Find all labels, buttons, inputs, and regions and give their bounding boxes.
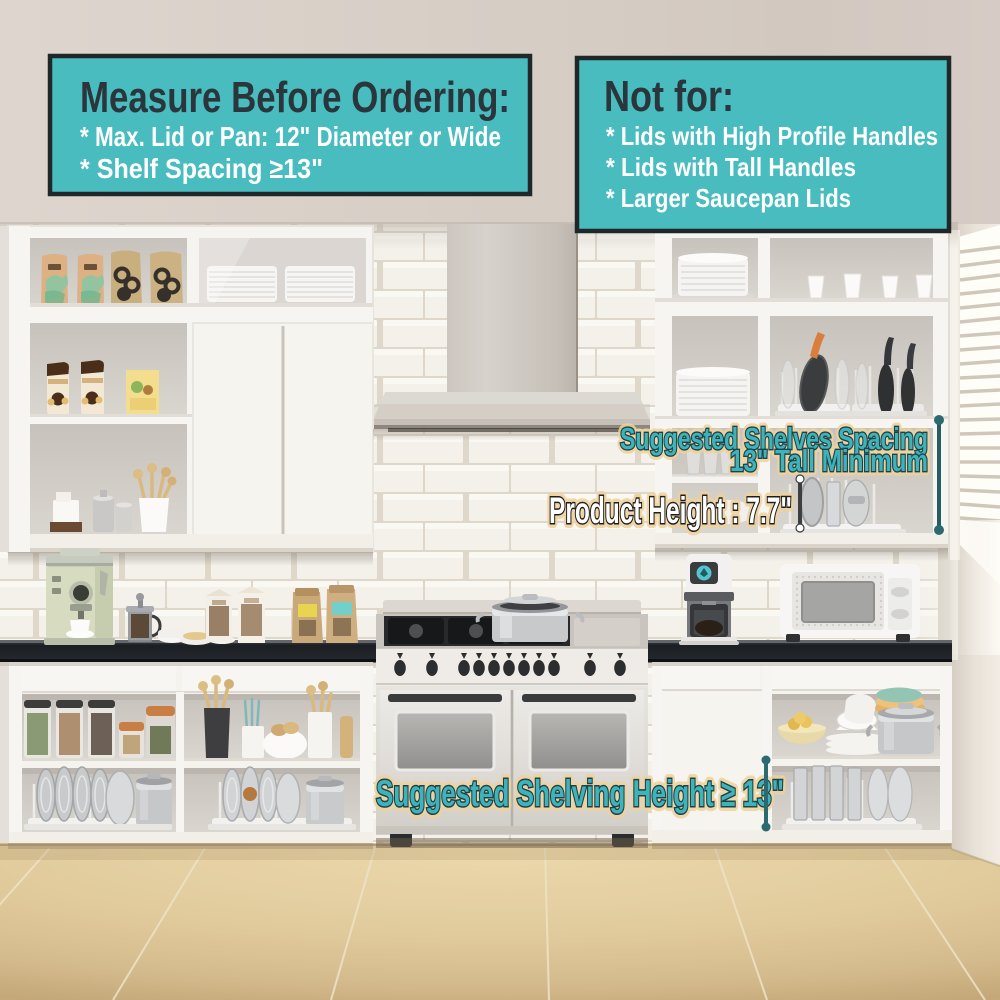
svg-text:Measure Before Ordering:: Measure Before Ordering: xyxy=(80,73,510,122)
svg-text:Not for:: Not for: xyxy=(604,72,734,121)
svg-text:13" Tall Minimum: 13" Tall Minimum xyxy=(730,443,928,478)
svg-text:Product Height : 7.7": Product Height : 7.7" xyxy=(549,490,792,531)
svg-text:* Shelf Spacing ≥13": * Shelf Spacing ≥13" xyxy=(80,153,323,184)
svg-text:* Max. Lid or Pan: 12" Diamete: * Max. Lid or Pan: 12" Diameter or Wide xyxy=(80,121,501,152)
svg-text:* Larger Saucepan Lids: * Larger Saucepan Lids xyxy=(606,183,851,213)
svg-text:Suggested Shelving Height ≥ 1: Suggested Shelving Height ≥ 13" xyxy=(376,773,784,814)
svg-text:* Lids with High Profile Handl: * Lids with High Profile Handles xyxy=(606,121,938,151)
svg-text:* Lids with Tall Handles: * Lids with Tall Handles xyxy=(606,152,856,182)
